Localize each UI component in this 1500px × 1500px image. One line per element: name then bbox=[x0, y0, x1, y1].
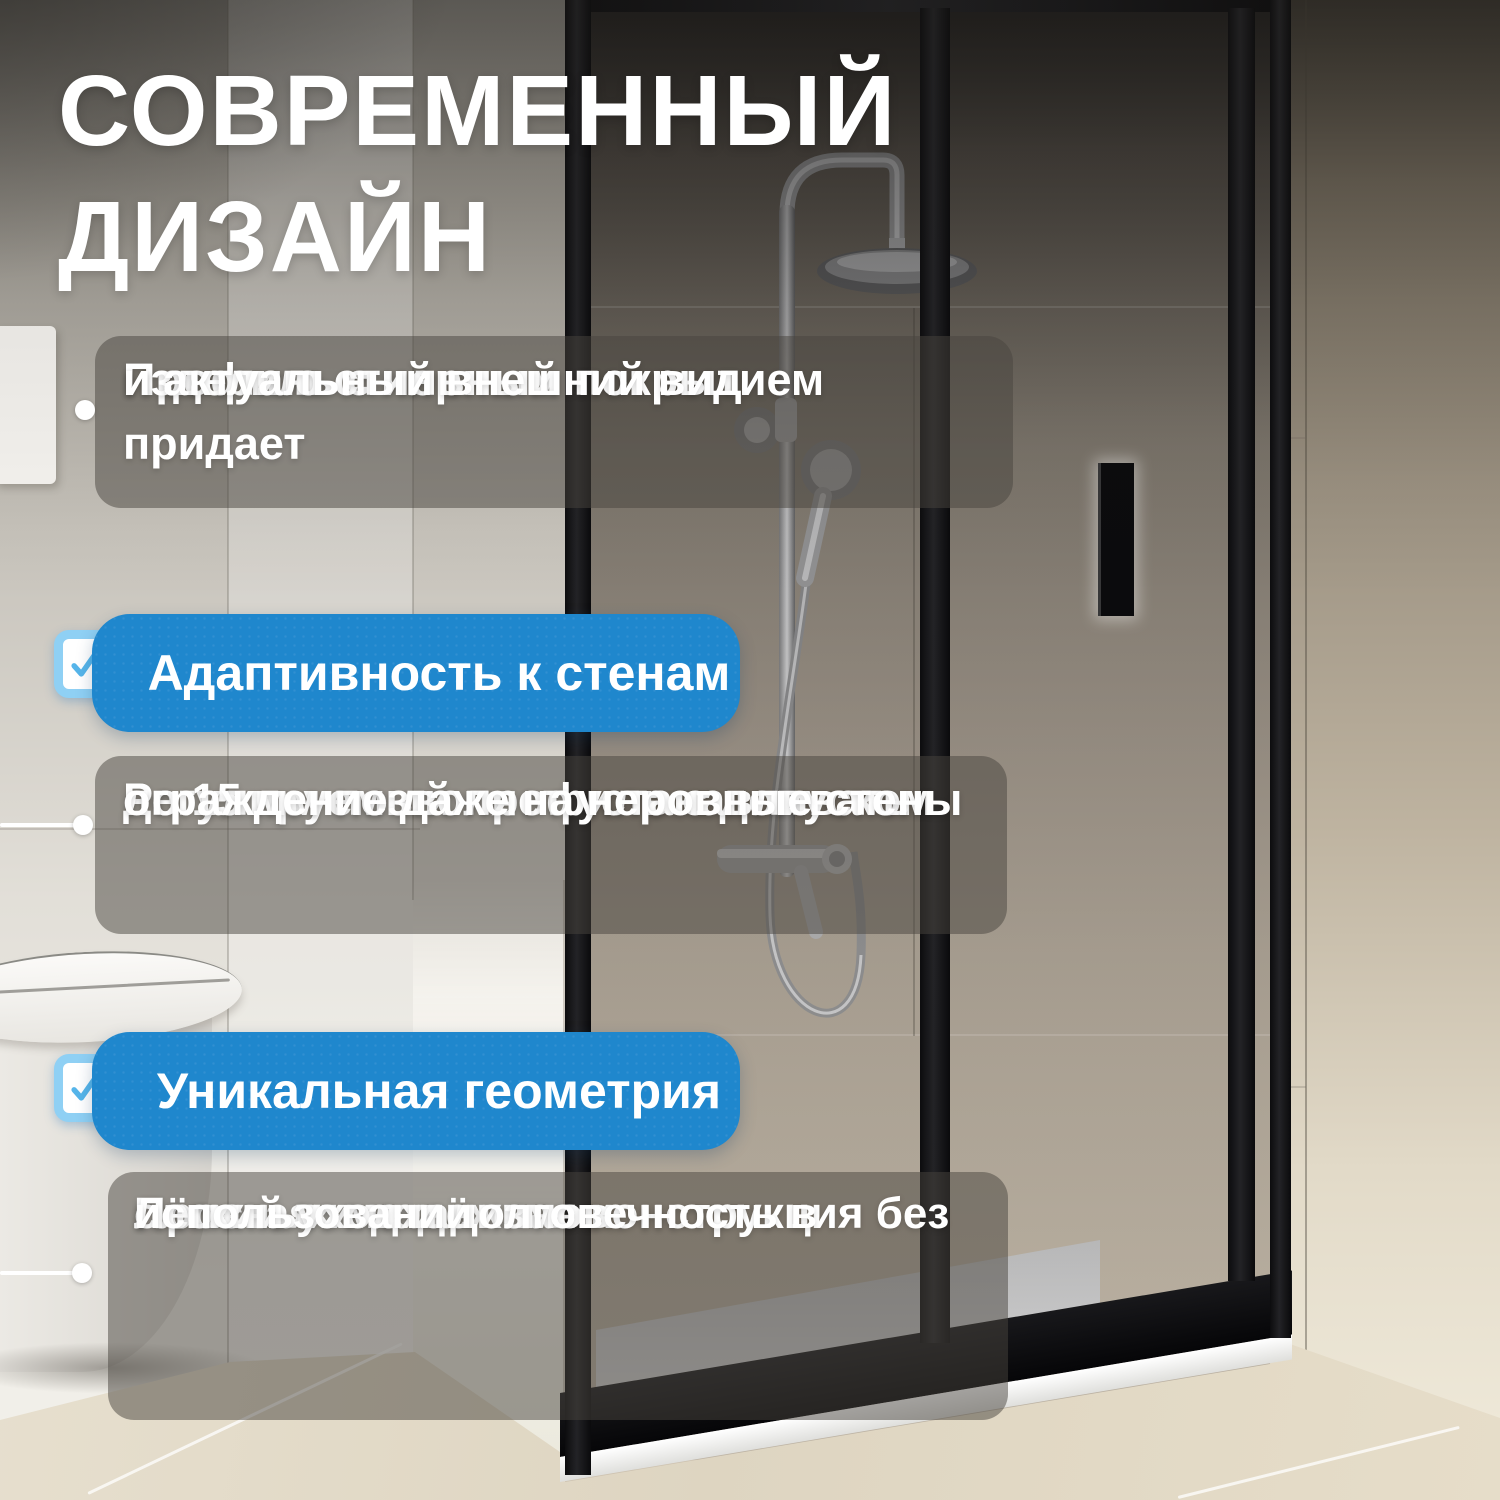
bullet-dot bbox=[73, 815, 93, 835]
badge-wall-adaptability: Адаптивность к стенам bbox=[92, 614, 740, 732]
badge-label: Адаптивность к стенам bbox=[148, 644, 731, 702]
feature-text-simple-construction: Простая и надёжная конструкция без сложн… bbox=[108, 1172, 1008, 1420]
door-handle bbox=[1098, 463, 1134, 616]
toilet-flush-plate bbox=[0, 326, 56, 484]
badge-label: Уникальная геометрия bbox=[157, 1062, 721, 1120]
feature-line: и актуальный внешний вид bbox=[123, 348, 742, 412]
tile-seam bbox=[1305, 0, 1307, 1400]
frame-wall-profile bbox=[1270, 0, 1291, 1338]
title-line-2: ДИЗАЙН bbox=[58, 174, 1158, 300]
bullet-dot bbox=[72, 1263, 92, 1283]
bullet-dot bbox=[75, 400, 95, 420]
feature-line: ограждение даже на неровные стены bbox=[123, 768, 962, 832]
page-title: СОВРЕМЕННЫЙ ДИЗАЙН bbox=[58, 48, 1158, 300]
title-line-1: СОВРЕМЕННЫЙ bbox=[58, 48, 1158, 174]
badge-unique-geometry: Уникальная геометрия bbox=[92, 1032, 740, 1150]
callout-line bbox=[0, 823, 78, 827]
feature-text-design: Профиль с черным покрытием придает издел… bbox=[95, 336, 1013, 508]
feature-line: использовании bbox=[134, 1186, 472, 1242]
product-infographic: СОВРЕМЕННЫЙ ДИЗАЙН Профиль с черным покр… bbox=[0, 0, 1500, 1500]
feature-text-adjustable-profile: Регулируемый профиль с допуском до 15 мм… bbox=[95, 756, 1007, 934]
callout-line bbox=[0, 1271, 76, 1275]
frame-door-stile bbox=[1228, 8, 1255, 1281]
